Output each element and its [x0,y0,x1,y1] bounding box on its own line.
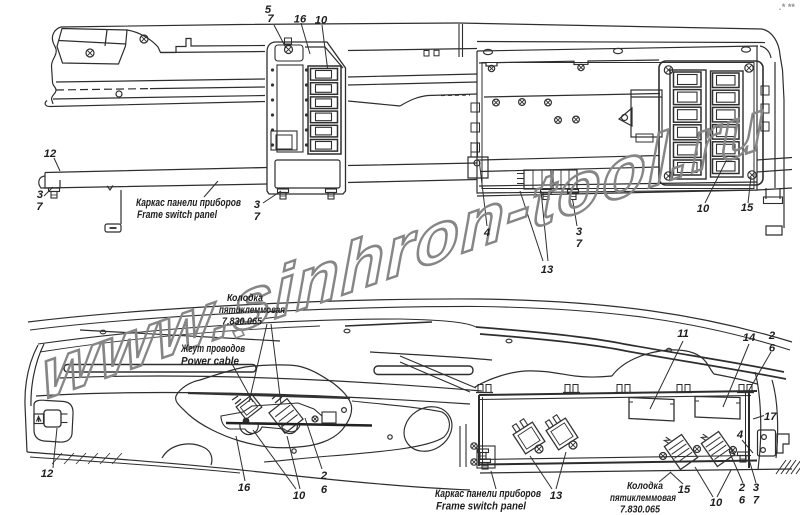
svg-text:Каркас панели приборов: Каркас панели приборов [136,197,241,209]
svg-text:16: 16 [238,482,251,494]
svg-text:3: 3 [254,199,261,211]
svg-text:2: 2 [738,482,746,494]
svg-text:7: 7 [254,211,261,223]
svg-text:11: 11 [677,328,689,340]
svg-text:Колодка: Колодка [627,480,663,492]
svg-text:10: 10 [315,15,328,27]
svg-text:12: 12 [41,468,54,480]
svg-text:10: 10 [697,203,710,215]
svg-text:Жгут проводов: Жгут проводов [180,343,245,355]
svg-text:12: 12 [44,148,57,160]
svg-text:6: 6 [321,484,328,496]
svg-text:6: 6 [739,495,746,507]
svg-text:Каркас панели приборов: Каркас панели приборов [435,488,541,500]
svg-text:10: 10 [710,497,723,509]
svg-text:6: 6 [769,343,776,355]
svg-text:3: 3 [576,226,583,238]
svg-text:14: 14 [743,332,756,344]
svg-text:7: 7 [36,201,43,213]
svg-text:Frame switch panel: Frame switch panel [137,209,218,221]
svg-text:13: 13 [550,490,563,502]
svg-text:7: 7 [267,13,274,25]
svg-text:.* **: .* ** [779,2,795,12]
svg-text:пятиклеммовая: пятиклеммовая [610,492,676,504]
svg-text:2: 2 [768,330,776,342]
svg-text:Power cable: Power cable [181,356,239,368]
svg-text:7.830.065: 7.830.065 [620,504,660,515]
svg-text:7.830.065: 7.830.065 [222,316,262,328]
svg-text:4: 4 [483,227,491,239]
svg-text:15: 15 [741,202,754,214]
svg-text:15: 15 [678,484,691,496]
svg-text:пятиклеммовая: пятиклеммовая [219,304,285,316]
svg-text:Колодка: Колодка [227,292,263,304]
svg-text:3: 3 [37,189,44,201]
svg-text:4: 4 [736,429,744,441]
svg-text:13: 13 [541,264,554,276]
svg-text:17: 17 [764,411,777,423]
svg-text:2: 2 [320,470,328,482]
svg-text:16: 16 [294,14,307,26]
svg-text:7: 7 [753,495,760,507]
svg-text:10: 10 [293,490,306,502]
svg-text:3: 3 [753,482,760,494]
svg-text:7: 7 [576,238,583,250]
svg-text:Frame switch panel: Frame switch panel [436,501,527,513]
